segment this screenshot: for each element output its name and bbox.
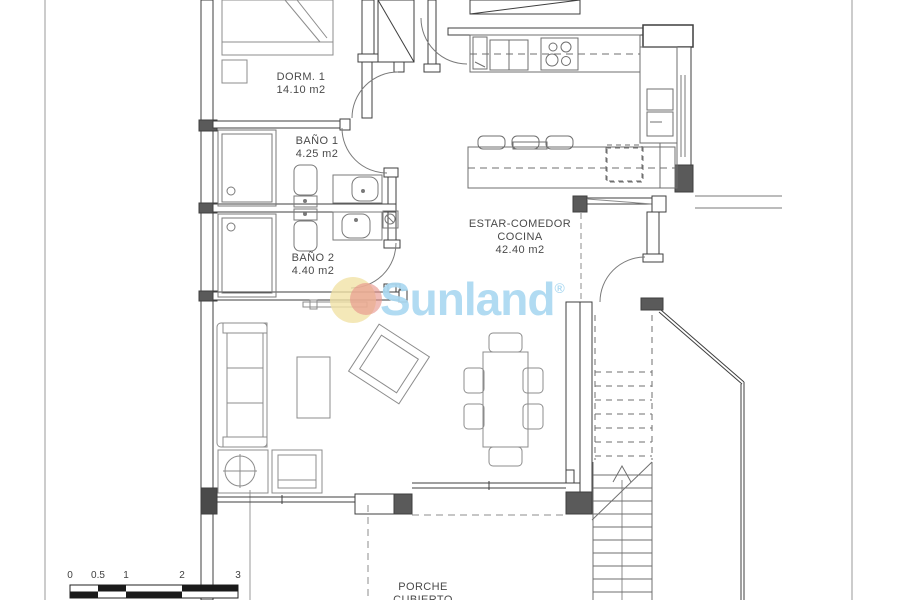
scale-label-1: 1 [111, 570, 141, 581]
room-area: 42.40 m2 [440, 244, 600, 257]
sunland-logo: Sunland® [328, 272, 588, 330]
room-name: BAÑO 1 [257, 135, 377, 148]
washbasin-1 [333, 175, 382, 203]
wardrobe-upper [470, 0, 580, 14]
dishwasher [607, 145, 642, 182]
room-name: CUBIERTO [363, 594, 483, 600]
room-name: DORM. 1 [241, 71, 361, 84]
sofa [217, 323, 267, 447]
staircase [592, 315, 652, 600]
room-label-porche: PORCHE CUBIERTO [363, 581, 483, 600]
room-label-estar: ESTAR-COMEDOR COCINA 42.40 m2 [440, 218, 600, 257]
armchair-1 [349, 324, 430, 404]
room-label-dorm1: DORM. 1 14.10 m2 [241, 71, 361, 97]
scale-label-0: 0 [55, 570, 85, 581]
washbasin-2 [333, 212, 382, 240]
floor-plan-page: DORM. 1 14.10 m2 BAÑO 1 4.25 m2 BAÑO 2 4… [0, 0, 900, 600]
bed [222, 0, 333, 55]
logo-text: Sunland [380, 273, 554, 325]
plant-table [218, 450, 268, 493]
fridge [606, 148, 643, 181]
armchair-2 [272, 450, 322, 493]
scale-label-0-5: 0.5 [83, 570, 113, 581]
coffee-table [297, 357, 330, 418]
scale-label-3: 3 [223, 570, 253, 581]
dining-set [464, 333, 543, 466]
registered-mark: ® [554, 280, 564, 296]
room-name: PORCHE [363, 581, 483, 594]
wardrobe-dorm [378, 0, 414, 72]
kitchen-counter [470, 35, 677, 181]
stair-direction-arrow-icon [613, 466, 631, 482]
room-name: ESTAR-COMEDOR [440, 218, 600, 231]
room-name: COCINA [440, 231, 600, 244]
toilet-1 [294, 165, 317, 207]
room-area: 4.25 m2 [257, 148, 377, 161]
room-name: BAÑO 2 [253, 252, 373, 265]
scale-label-2: 2 [167, 570, 197, 581]
room-label-bano1: BAÑO 1 4.25 m2 [257, 135, 377, 161]
logo-wordmark: Sunland® [380, 272, 565, 326]
breakfast-bar [468, 136, 677, 188]
scale-bar [70, 585, 238, 598]
room-area: 14.10 m2 [241, 84, 361, 97]
toilet-2 [294, 209, 317, 251]
